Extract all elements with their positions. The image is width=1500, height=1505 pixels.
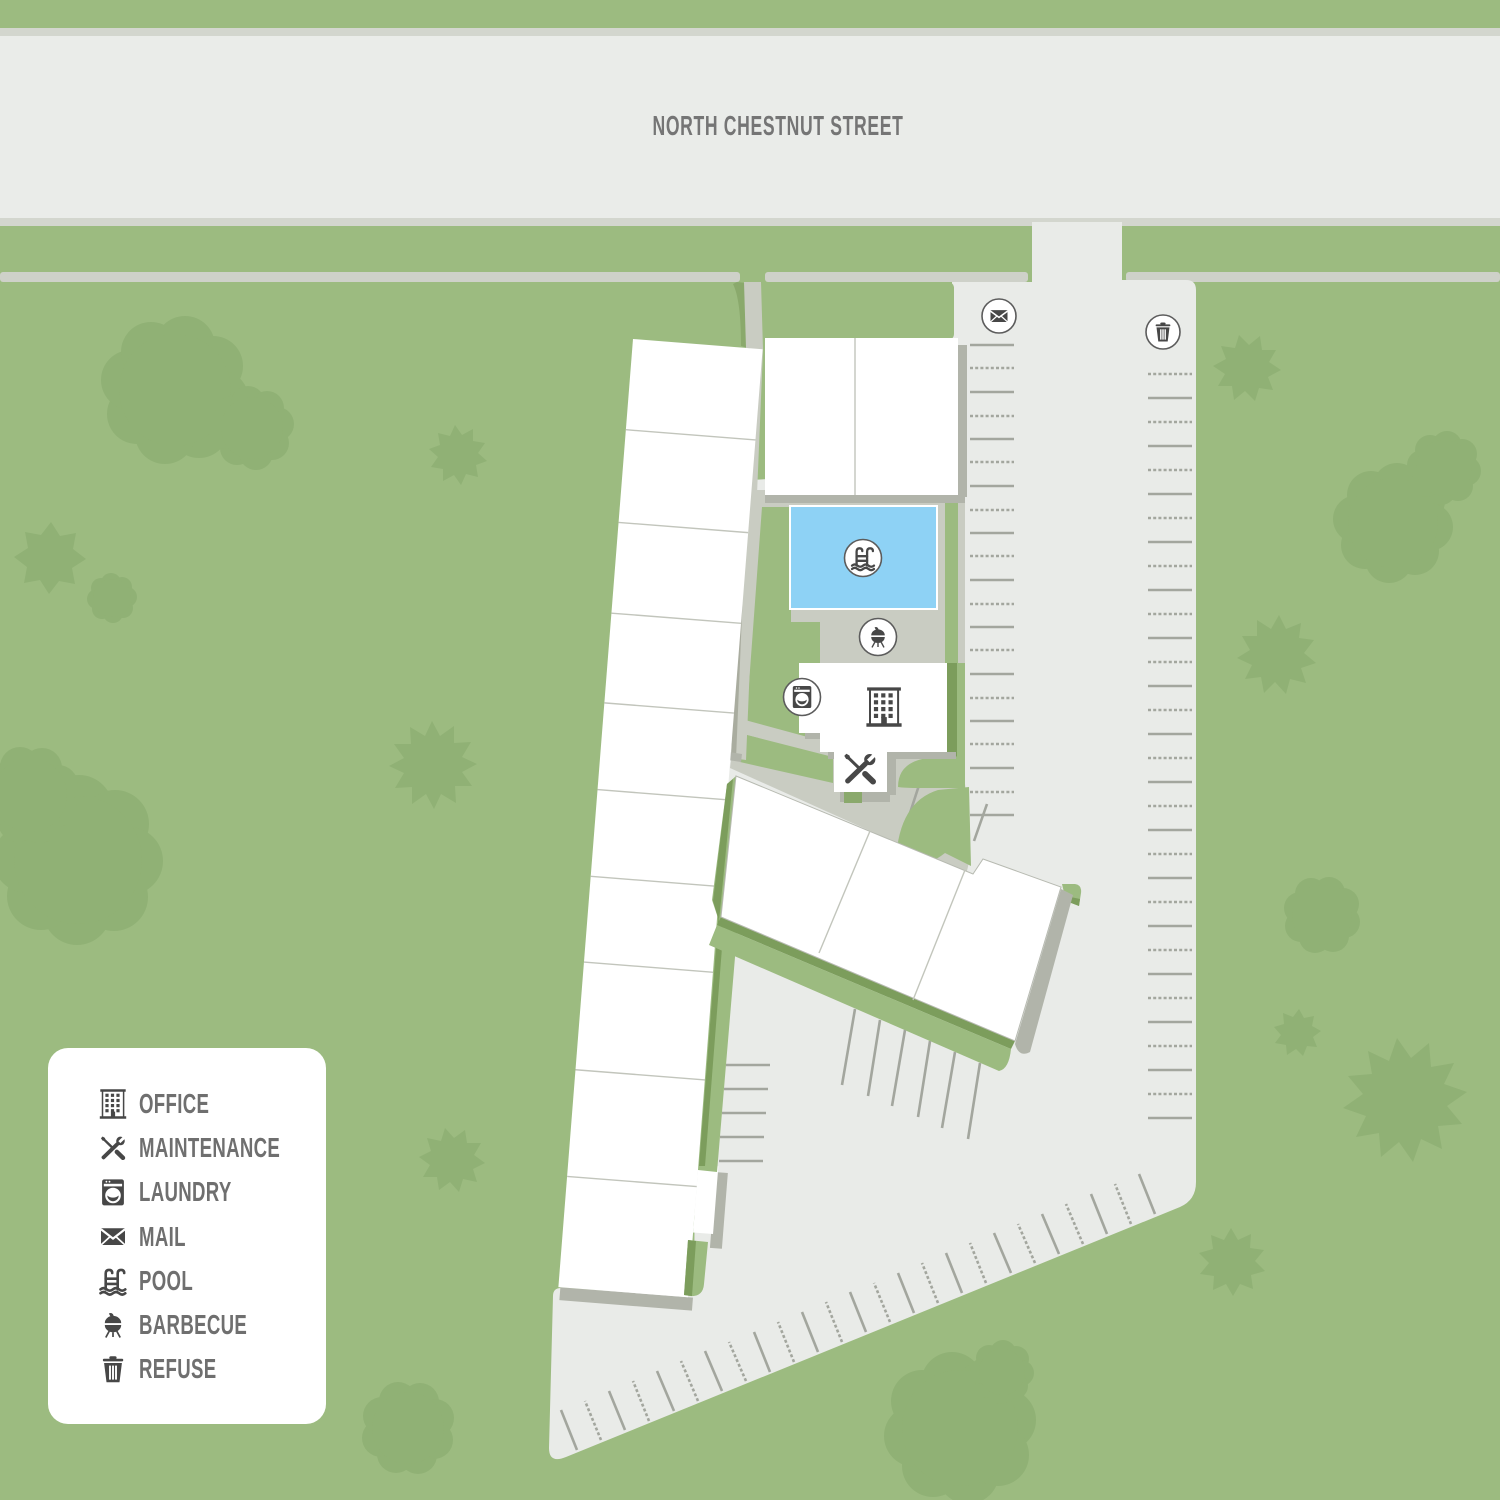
svg-text:LAUNDRY: LAUNDRY [139,1176,232,1208]
svg-text:REFUSE: REFUSE [139,1353,216,1385]
svg-text:MAIL: MAIL [139,1221,186,1253]
svg-text:NORTH CHESTNUT STREET: NORTH CHESTNUT STREET [653,110,904,141]
svg-text:MAINTENANCE: MAINTENANCE [139,1132,280,1164]
svg-text:POOL: POOL [139,1265,193,1297]
svg-text:OFFICE: OFFICE [139,1088,209,1120]
svg-text:BARBECUE: BARBECUE [139,1309,247,1341]
